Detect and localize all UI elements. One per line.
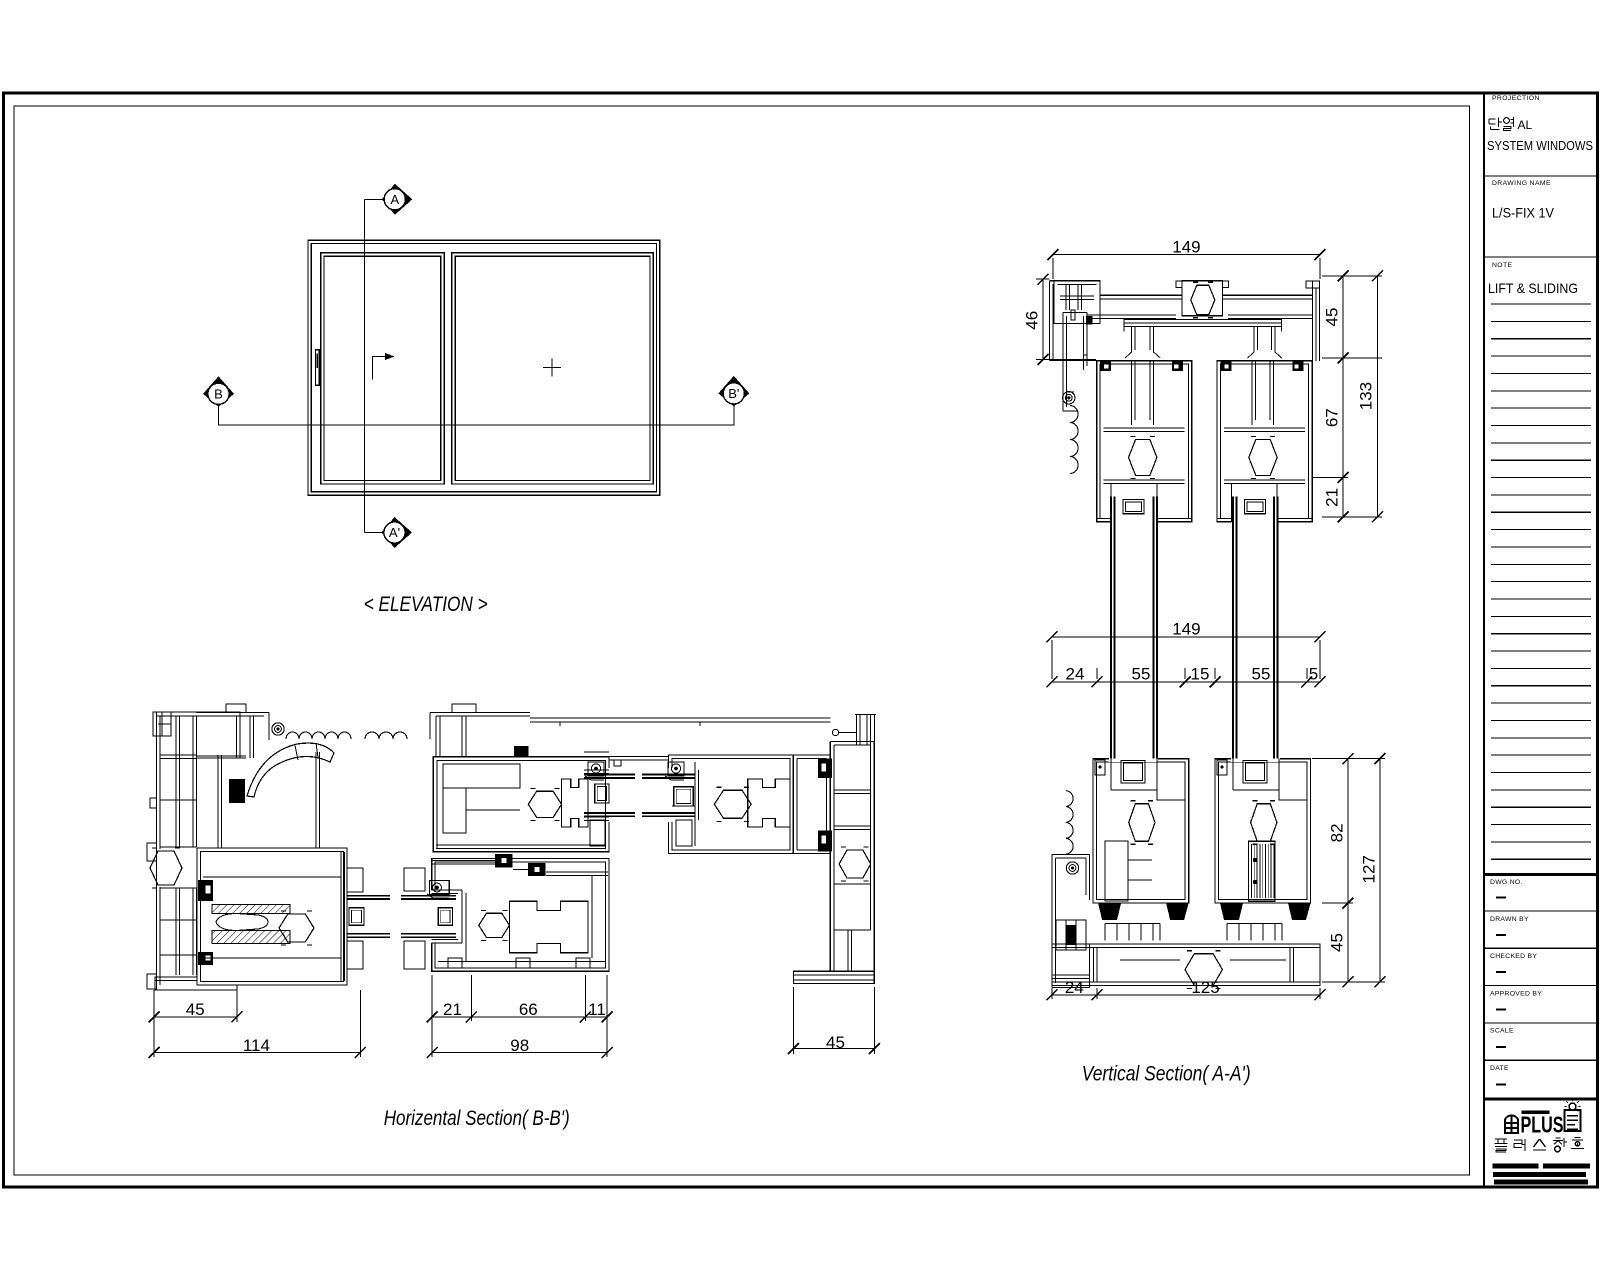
svg-text:Vertical Section( A-A'): Vertical Section( A-A'): [1082, 1063, 1251, 1086]
svg-text:PROJECTION: PROJECTION: [1492, 95, 1540, 102]
svg-text:B: B: [214, 386, 223, 401]
svg-text:149: 149: [1172, 620, 1200, 639]
svg-text:24: 24: [1065, 978, 1084, 997]
svg-text:APPROVED BY: APPROVED BY: [1490, 991, 1542, 998]
svg-text:SYSTEM WINDOWS: SYSTEM WINDOWS: [1487, 139, 1593, 153]
svg-text:45: 45: [826, 1033, 845, 1052]
svg-text:21: 21: [443, 1000, 462, 1019]
svg-text:149: 149: [1172, 238, 1200, 257]
svg-text:66: 66: [519, 1000, 538, 1019]
svg-text:SCALE: SCALE: [1490, 1028, 1514, 1035]
svg-text:24: 24: [1066, 665, 1085, 684]
svg-text:55: 55: [1132, 665, 1151, 684]
svg-text:125: 125: [1191, 978, 1219, 997]
svg-text:NOTE: NOTE: [1492, 262, 1513, 269]
svg-text:82: 82: [1327, 823, 1346, 842]
svg-text:A': A': [389, 525, 400, 540]
svg-text:Horizental Section( B-B'): Horizental Section( B-B'): [384, 1107, 570, 1130]
svg-text:DWG NO.: DWG NO.: [1490, 879, 1523, 886]
svg-text:133: 133: [1357, 382, 1376, 410]
svg-text:15: 15: [1191, 665, 1210, 684]
svg-text:5: 5: [1309, 665, 1318, 684]
svg-text:45: 45: [1327, 933, 1346, 952]
svg-text:114: 114: [243, 1036, 270, 1055]
svg-text:< ELEVATION >: < ELEVATION >: [364, 593, 488, 616]
svg-text:B': B': [728, 386, 739, 401]
svg-text:CHECKED BY: CHECKED BY: [1490, 953, 1537, 960]
svg-text:LIFT & SLIDING: LIFT & SLIDING: [1488, 280, 1578, 296]
svg-text:45: 45: [186, 1000, 205, 1019]
svg-text:55: 55: [1252, 665, 1271, 684]
svg-text:127: 127: [1359, 855, 1378, 883]
svg-text:21: 21: [1323, 488, 1342, 507]
svg-text:AL: AL: [1518, 118, 1533, 132]
svg-text:PLUS: PLUS: [1521, 1112, 1564, 1138]
svg-text:11: 11: [588, 1000, 606, 1019]
svg-text:L/S-FIX 1V: L/S-FIX 1V: [1492, 206, 1554, 221]
svg-text:46: 46: [1023, 311, 1042, 330]
svg-text:45: 45: [1323, 308, 1342, 327]
svg-text:98: 98: [510, 1036, 529, 1055]
svg-text:A: A: [390, 192, 399, 207]
svg-text:DRAWING NAME: DRAWING NAME: [1492, 180, 1551, 187]
svg-text:67: 67: [1323, 408, 1342, 427]
svg-text:DRAWN BY: DRAWN BY: [1490, 916, 1529, 923]
svg-text:DATE: DATE: [1490, 1065, 1509, 1072]
